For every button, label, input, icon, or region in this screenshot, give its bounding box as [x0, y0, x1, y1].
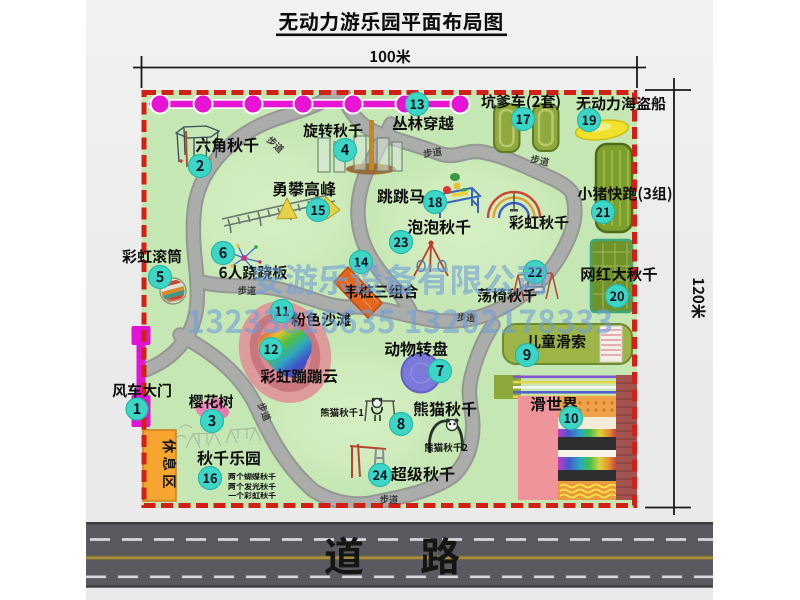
svg-text:5: 5	[156, 266, 165, 287]
svg-text:旋转秋千: 旋转秋千	[303, 120, 363, 141]
svg-text:19: 19	[581, 110, 596, 129]
svg-text:步道: 步道	[422, 144, 443, 161]
svg-text:跳跳马: 跳跳马	[377, 183, 425, 207]
svg-text:休息区: 休息区	[159, 438, 180, 492]
svg-text:13233816635 13202178333: 13233816635 13202178333	[186, 297, 614, 343]
svg-text:勇攀高峰: 勇攀高峰	[272, 176, 336, 200]
svg-text:10: 10	[563, 408, 578, 427]
svg-text:六角秋千: 六角秋千	[195, 132, 259, 156]
svg-text:15: 15	[310, 200, 325, 219]
svg-text:安游乐设备有限公司: 安游乐设备有限公司	[252, 254, 549, 302]
svg-text:超级秋千: 超级秋千	[391, 461, 455, 485]
svg-text:彩虹蹦蹦云: 彩虹蹦蹦云	[260, 365, 338, 387]
svg-text:小猪快跑(3组): 小猪快跑(3组)	[577, 183, 672, 204]
svg-text:100米: 100米	[369, 46, 411, 67]
svg-text:步道: 步道	[379, 492, 399, 506]
svg-text:泡泡秋千: 泡泡秋千	[407, 214, 471, 238]
svg-text:熊猫秋千: 熊猫秋千	[413, 396, 477, 420]
svg-text:风车大门: 风车大门	[112, 380, 172, 401]
svg-text:樱花树: 樱花树	[188, 391, 233, 412]
svg-text:一个彩虹秋千: 一个彩虹秋千	[228, 491, 276, 502]
svg-text:21: 21	[595, 202, 610, 221]
svg-text:24: 24	[372, 465, 388, 484]
svg-text:6: 6	[219, 242, 228, 263]
svg-text:秋千乐园: 秋千乐园	[197, 445, 261, 469]
svg-text:17: 17	[515, 109, 530, 128]
svg-text:网红大秋千: 网红大秋千	[580, 263, 658, 285]
svg-text:1: 1	[133, 398, 142, 419]
svg-text:13: 13	[409, 94, 424, 113]
svg-text:2: 2	[196, 155, 205, 176]
svg-text:3: 3	[208, 410, 217, 431]
svg-text:彩虹滚筒: 彩虹滚筒	[122, 246, 182, 267]
svg-text:丛林穿越: 丛林穿越	[392, 112, 455, 134]
svg-text:18: 18	[427, 192, 442, 211]
svg-text:熊猫秋千2: 熊猫秋千2	[424, 440, 468, 454]
svg-text:7: 7	[436, 360, 445, 381]
svg-text:无动力游乐园平面布局图: 无动力游乐园平面布局图	[278, 6, 504, 35]
svg-text:23: 23	[393, 232, 408, 251]
svg-text:9: 9	[523, 344, 532, 365]
svg-text:道: 道	[324, 525, 364, 583]
svg-text:彩虹秋千: 彩虹秋千	[509, 212, 569, 233]
svg-text:4: 4	[341, 139, 350, 160]
svg-text:8: 8	[397, 413, 406, 434]
svg-text:120米: 120米	[688, 277, 709, 319]
svg-text:16: 16	[202, 468, 218, 487]
svg-text:熊猫秋千1: 熊猫秋千1	[320, 405, 364, 419]
svg-text:路: 路	[420, 525, 460, 583]
